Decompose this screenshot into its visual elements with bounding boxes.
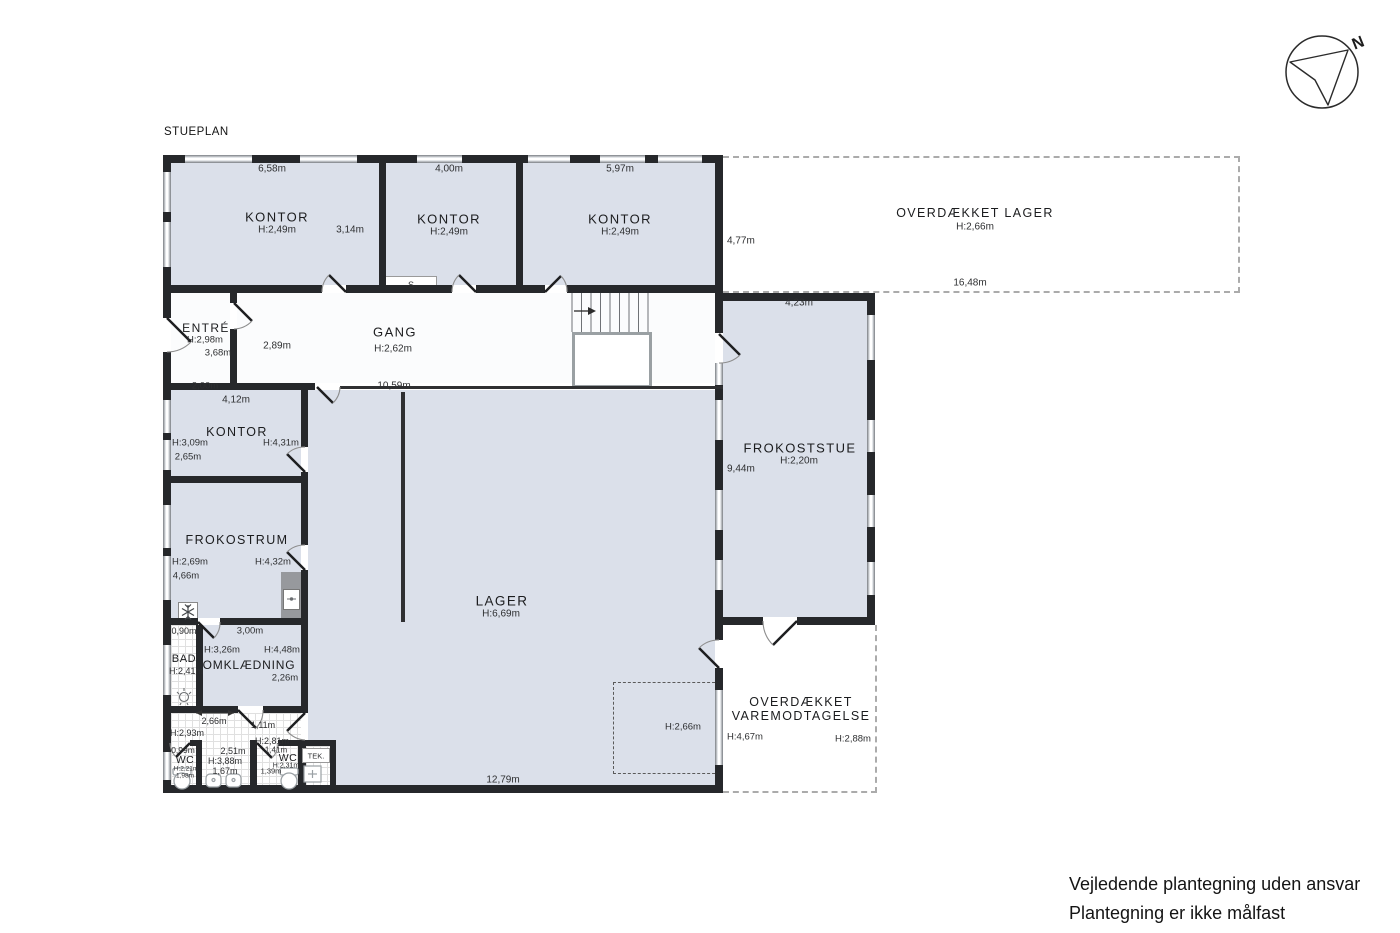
- height-label: H:2,93m: [170, 728, 204, 738]
- room-label-bad: BAD: [172, 653, 196, 665]
- height-label: H:2,66m: [665, 722, 701, 733]
- room-label-kontor-2: KONTOR: [417, 212, 481, 227]
- height-label: H:2,98m: [187, 335, 223, 346]
- height-label: H:2,41m: [169, 666, 203, 676]
- dim-label: 2,65m: [175, 452, 201, 463]
- window: [185, 155, 252, 163]
- wall: [163, 706, 238, 713]
- wall: [567, 285, 723, 293]
- dim-label: 4,23m: [785, 298, 813, 309]
- room-label-varemodtagelse-1: OVERDÆKKET: [749, 695, 853, 709]
- height-label: H:2,49m: [258, 225, 296, 236]
- room-label-frokoststue: FROKOSTSTUE: [744, 441, 857, 456]
- room-label-kontor-3: KONTOR: [588, 212, 652, 227]
- height-label: H:4,48m: [264, 645, 300, 656]
- window: [528, 155, 570, 163]
- wall: [346, 285, 452, 293]
- compass-icon: N: [1286, 33, 1367, 108]
- lager-partition-line: [401, 392, 405, 622]
- room-label-frokostrum: FROKOSTRUM: [186, 533, 289, 547]
- wall: [220, 618, 308, 625]
- room-label-wc-left: WC: [176, 754, 195, 766]
- wall: [379, 155, 386, 293]
- dim-label: 12,79m: [486, 775, 519, 786]
- window: [163, 222, 171, 267]
- window: [715, 400, 723, 440]
- room-label-kontor-1: KONTOR: [245, 210, 309, 225]
- door-opening: [715, 640, 723, 668]
- dim-label: H:4,31m: [263, 438, 299, 449]
- kitchenette-sink: [283, 589, 300, 610]
- window: [300, 155, 357, 163]
- room-label-varemodtagelse-2: VAREMODTAGELSE: [732, 709, 871, 723]
- height-label: H:2,21m: [174, 766, 199, 773]
- height-label: H:2,88m: [835, 734, 871, 745]
- height-label: H:2,66m: [956, 222, 994, 233]
- dim-label: 6,58m: [258, 164, 286, 175]
- height-label: H:3,26m: [204, 645, 240, 656]
- dim-label: 4,00m: [435, 164, 463, 175]
- dim-label: 2,26m: [272, 673, 298, 684]
- stair-void: [572, 332, 652, 388]
- window: [163, 440, 171, 470]
- dim-label: 4,12m: [222, 395, 250, 406]
- room-label-overdaekket-lager: OVERDÆKKET LAGER: [896, 206, 1054, 220]
- wall: [163, 383, 315, 390]
- dim-label: 4,66m: [173, 571, 199, 582]
- window: [600, 155, 645, 163]
- compass-north-label: N: [1350, 33, 1367, 53]
- closet-label: S: [408, 280, 414, 290]
- height-label: H:3,88m: [208, 756, 242, 766]
- height-label: H:3,09m: [172, 438, 208, 449]
- window: [163, 752, 171, 780]
- window: [715, 560, 723, 590]
- window: [715, 690, 723, 765]
- plan-title: STUEPLAN: [164, 126, 229, 138]
- room-label-entre: ENTRÉ: [182, 321, 230, 335]
- dim-label: 1,67m: [212, 766, 237, 776]
- dim-label: 2,51m: [220, 746, 245, 756]
- window: [867, 495, 875, 527]
- dim-label: 2,89m: [263, 341, 291, 352]
- window: [658, 155, 702, 163]
- room-label-omklaedning: OMKLÆDNING: [203, 658, 296, 672]
- window: [715, 363, 723, 385]
- wall: [163, 618, 198, 625]
- height-label: H:2,69m: [172, 557, 208, 568]
- dim-label: 2,66m: [201, 716, 226, 726]
- wall: [263, 706, 308, 713]
- dim-label: 0,90m: [171, 626, 196, 636]
- dim-label: 4,77m: [727, 236, 755, 247]
- dim-label: 9,44m: [727, 464, 755, 475]
- window: [715, 490, 723, 530]
- room-label-gang: GANG: [373, 325, 417, 340]
- dim-label: 2,00m: [192, 381, 218, 392]
- dim-label: 3,00m: [237, 626, 263, 637]
- wall: [301, 390, 308, 447]
- window: [163, 172, 171, 212]
- window: [163, 556, 171, 600]
- wall: [163, 785, 723, 793]
- wall: [476, 285, 545, 293]
- dim-label: 5,97m: [606, 164, 634, 175]
- window: [163, 505, 171, 548]
- dim-label: 1,11m: [251, 720, 275, 730]
- height-label: H:2,20m: [780, 456, 818, 467]
- room-label-kontor-4: KONTOR: [206, 425, 268, 439]
- door-opening: [763, 617, 797, 625]
- wall: [163, 285, 322, 293]
- dim-label: 3,14m: [336, 225, 364, 236]
- room-label-lager: LAGER: [476, 594, 529, 609]
- wall: [230, 329, 237, 390]
- height-label: H:2,62m: [374, 344, 412, 355]
- window: [867, 562, 875, 595]
- height-label: H:6,69m: [482, 609, 520, 620]
- door-opening: [163, 318, 171, 352]
- wall: [723, 617, 875, 625]
- floor-plan: STUEPLAN: [0, 0, 1400, 933]
- wall: [516, 155, 523, 293]
- wall: [250, 740, 257, 793]
- disclaimer-line-2: Plantegning er ikke målfast: [1069, 903, 1285, 924]
- dim-label: 3,68m: [205, 348, 231, 359]
- wall: [301, 570, 308, 713]
- wall: [330, 740, 336, 793]
- room-label-teknik: TEK.: [308, 752, 325, 761]
- wall: [163, 476, 308, 483]
- window: [163, 400, 171, 433]
- dim-label: 10,59m: [377, 381, 410, 392]
- height-label: H:2,49m: [430, 227, 468, 238]
- disclaimer-line-1: Vejledende plantegning uden ansvar: [1069, 874, 1360, 895]
- height-label: H:4,67m: [727, 732, 763, 743]
- window: [867, 420, 875, 452]
- dim-label: H:4,32m: [255, 557, 291, 568]
- height-label: H:2,81m: [255, 736, 289, 746]
- dim-label: 1,39m: [261, 767, 282, 776]
- window: [867, 315, 875, 360]
- wall: [230, 293, 237, 303]
- window: [417, 155, 462, 163]
- dim-label: 1,98m: [176, 773, 194, 780]
- height-label: H:2,49m: [601, 227, 639, 238]
- dim-label: 16,48m: [953, 278, 986, 289]
- door-opening: [715, 333, 723, 363]
